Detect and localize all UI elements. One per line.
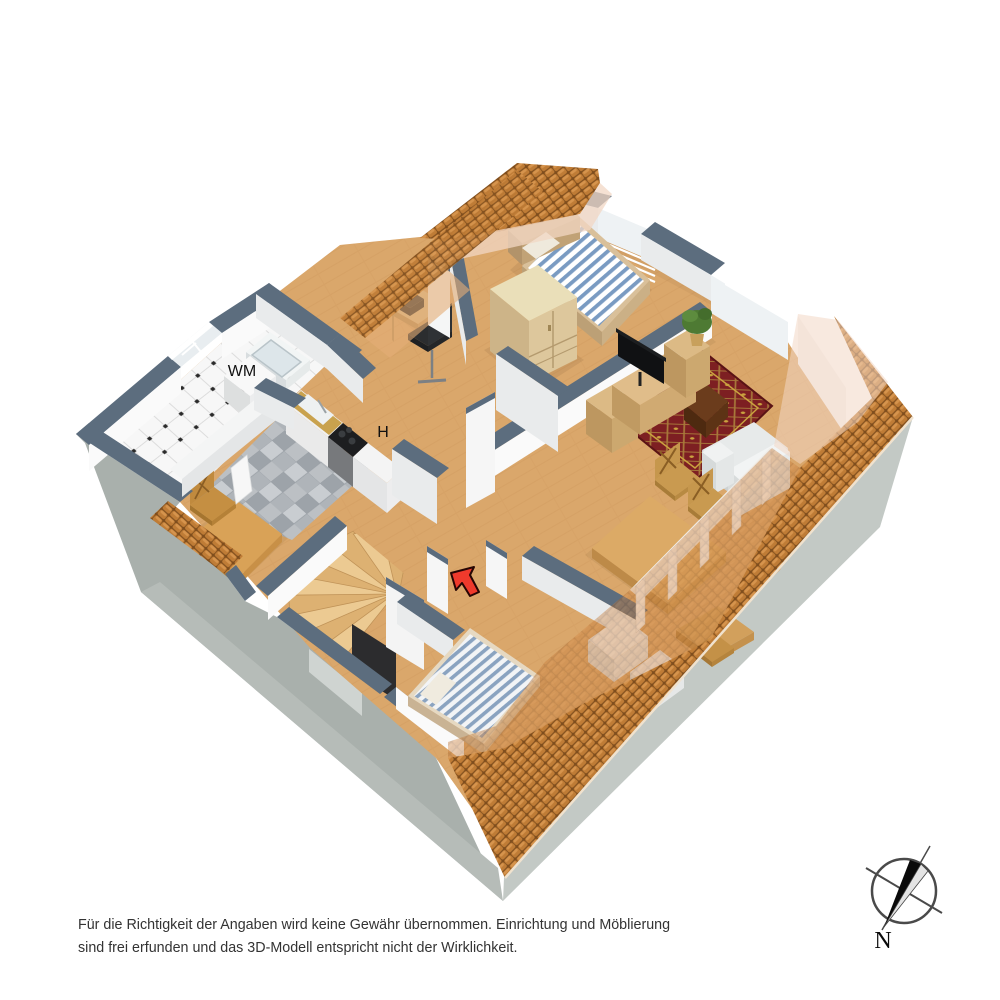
svg-text:H: H bbox=[377, 424, 389, 441]
svg-text:Für die Richtigkeit der Angabe: Für die Richtigkeit der Angaben wird kei… bbox=[78, 917, 670, 933]
svg-text:N: N bbox=[874, 928, 891, 954]
svg-text:WM: WM bbox=[228, 363, 256, 380]
svg-text:sind frei erfunden und das 3D-: sind frei erfunden und das 3D-Modell ent… bbox=[78, 940, 517, 956]
